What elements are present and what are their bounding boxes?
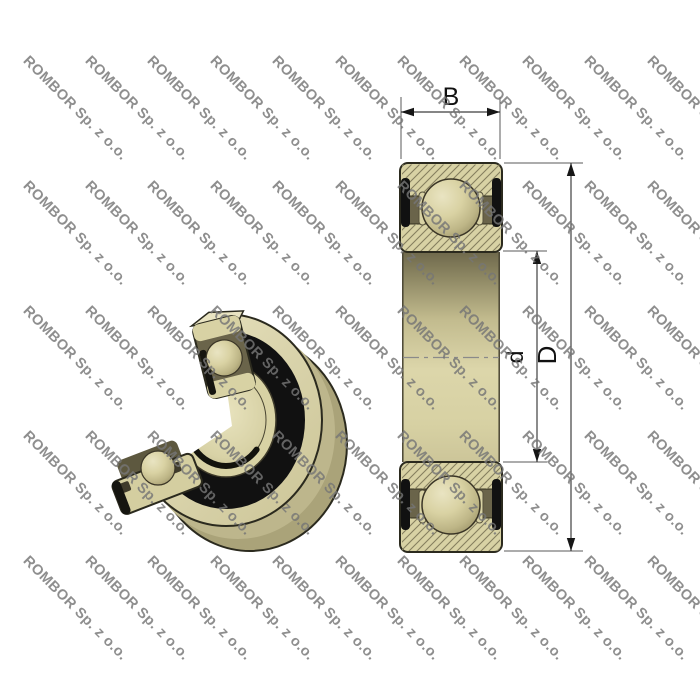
dimension-B: B <box>401 83 500 159</box>
cross-section-bottom-ring <box>400 462 502 552</box>
dimension-label-D: D <box>532 346 562 365</box>
bearing-cross-section <box>400 163 502 552</box>
seal-left <box>401 479 410 530</box>
seal-right <box>492 178 501 227</box>
bearing-ball-3d-bottom <box>141 451 175 485</box>
seal-left <box>401 178 410 227</box>
bearing-3d-render <box>104 304 347 551</box>
dimension-label-d: d <box>502 351 528 364</box>
arrow-up <box>567 163 575 176</box>
bearing-drawing-page: B d D ROMBOR Sp. z o.o.ROMBOR Sp. z o.o.… <box>0 0 700 700</box>
bearing-technical-drawing: B d D <box>0 0 700 700</box>
arrow-up <box>533 251 541 264</box>
arrow-down <box>567 538 575 551</box>
dimension-label-B: B <box>443 83 460 111</box>
bearing-ball-section-top <box>422 179 480 237</box>
cross-section-top-ring <box>400 163 502 252</box>
arrow-left <box>401 108 414 116</box>
arrow-down <box>533 449 541 462</box>
bearing-ball-section-bottom <box>422 476 480 534</box>
seal-right <box>492 479 501 530</box>
arrow-right <box>487 108 500 116</box>
